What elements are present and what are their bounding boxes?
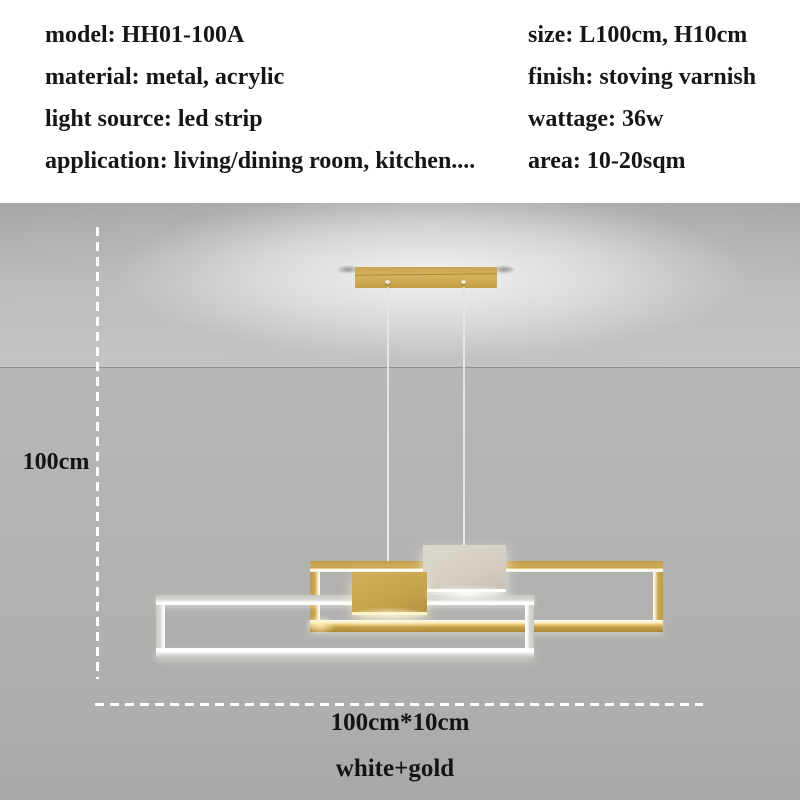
spec-size: size: L100cm, H10cm <box>528 14 756 56</box>
fixture-size-label: 100cm*10cm <box>300 709 500 737</box>
color-variant-label: white+gold <box>294 755 496 783</box>
canopy-edge-line <box>355 273 497 275</box>
spec-finish: finish: stoving varnish <box>528 56 756 98</box>
spec-application: application: living/dining room, kitchen… <box>45 140 475 182</box>
suspension-wire-left <box>387 287 389 572</box>
ceiling-canopy <box>355 267 497 288</box>
white-frame-bottom-bar <box>156 648 534 658</box>
suspension-wire-right <box>463 287 465 545</box>
spec-material: material: metal, acrylic <box>45 56 475 98</box>
wire-connector-left <box>385 280 390 284</box>
spec-panel: model: HH01-100A material: metal, acryli… <box>0 0 800 203</box>
gold-box-light-glow <box>350 607 430 622</box>
height-dimension-label: 100cm <box>14 449 98 476</box>
spec-list-left: model: HH01-100A material: metal, acryli… <box>45 14 475 182</box>
spec-model: model: HH01-100A <box>45 14 475 56</box>
spec-list-right: size: L100cm, H10cm finish: stoving varn… <box>528 14 756 182</box>
white-box-light-glow <box>420 585 515 603</box>
wire-connector-right <box>461 280 466 284</box>
spec-lightsource: light source: led strip <box>45 98 475 140</box>
width-dimension-dashed-line <box>95 703 703 706</box>
gold-frame-corner-glow <box>304 615 336 635</box>
spec-area: area: 10-20sqm <box>528 140 756 182</box>
gold-frame-right-bar <box>653 572 663 620</box>
product-photo: 100cm 100cm*10cm white+gold <box>0 203 800 800</box>
gold-frame-bottom-bar <box>310 620 663 632</box>
white-frame-left-bar <box>156 605 165 648</box>
spec-wattage: wattage: 36w <box>528 98 756 140</box>
white-frame-right-bar <box>525 605 534 648</box>
